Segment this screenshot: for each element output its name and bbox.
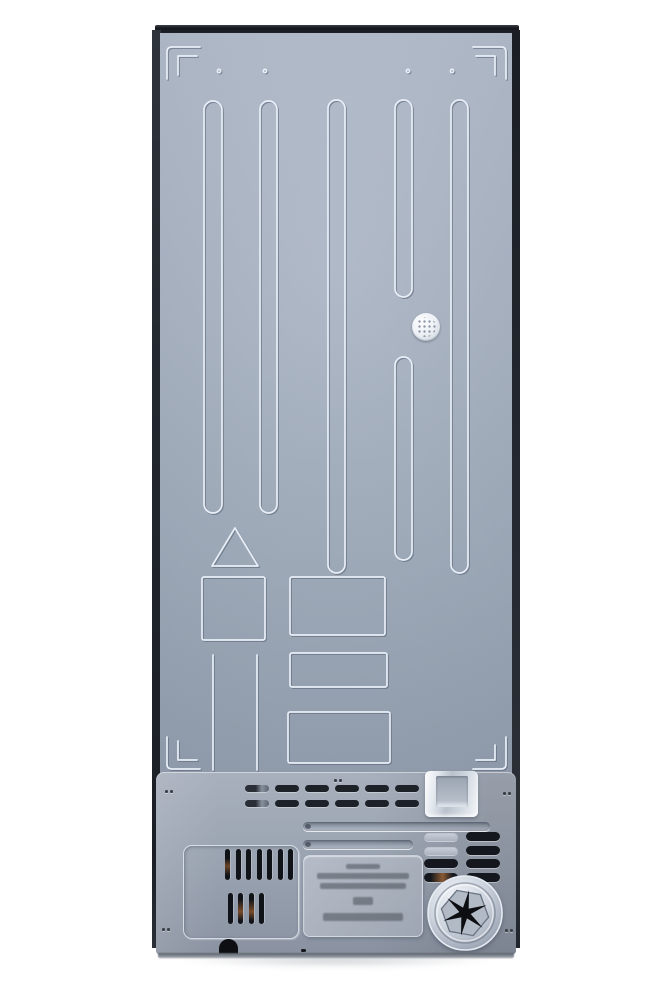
vent-slot [395, 800, 419, 807]
grille-slot-row [225, 849, 293, 880]
mounting-bracket [425, 771, 478, 817]
left-vent-grille [183, 845, 299, 939]
vent-slot [245, 785, 269, 792]
plate-text-line [323, 913, 403, 921]
grille-slot [238, 893, 243, 924]
soft-drop-shadow [168, 958, 504, 970]
compressor-cover [156, 772, 516, 954]
screw-mark [503, 792, 512, 796]
screw-mark [334, 779, 343, 783]
plate-text-line [317, 873, 409, 879]
grille-slot [259, 893, 264, 924]
vent-slot-group [365, 785, 389, 807]
grille-slot [246, 849, 251, 880]
grille-slot [225, 849, 230, 880]
cover-groove [303, 822, 490, 831]
vent-cell [466, 832, 500, 841]
vent-cell [424, 859, 458, 868]
screw-mark [165, 790, 174, 794]
vent-slot-group [395, 785, 419, 807]
rating-label-plate [303, 855, 423, 937]
vent-slot [305, 785, 329, 792]
vent-slot [245, 800, 269, 807]
grille-slot [249, 893, 254, 924]
vent-slot [365, 785, 389, 792]
grille-slot [288, 849, 293, 880]
vent-cell [424, 832, 458, 841]
vent-slot [275, 785, 299, 792]
vent-slot-group [305, 785, 329, 807]
vent-slot [275, 800, 299, 807]
drain-hole [219, 939, 238, 954]
vent-slot-group [275, 785, 299, 807]
vent-cell [466, 859, 500, 868]
plate-text-line [346, 864, 380, 869]
panel-vent-plug [412, 313, 440, 341]
fridge-back-panel [160, 33, 512, 774]
plate-text-line [353, 897, 373, 905]
cover-groove [303, 840, 413, 849]
grille-slot [257, 849, 262, 880]
vent-cell [466, 846, 500, 855]
drain-cap-star [426, 874, 504, 952]
grille-slot [236, 849, 241, 880]
grille-slot [228, 893, 233, 924]
vent-slot [335, 800, 359, 807]
grille-slot [267, 849, 272, 880]
vent-slot [395, 785, 419, 792]
screw-mark [162, 928, 171, 932]
vent-slot [335, 785, 359, 792]
grille-slot-row [228, 893, 264, 924]
vent-slot [305, 800, 329, 807]
vent-cell [424, 846, 458, 855]
plate-text-line [320, 883, 406, 889]
product-photo-refrigerator-back [0, 0, 667, 1000]
screw-mark [505, 929, 514, 933]
small-vent-notch [301, 949, 306, 952]
vent-slot-group [335, 785, 359, 807]
cover-top-vent-row [245, 785, 419, 807]
vent-slot-group [245, 785, 269, 807]
vent-slot [365, 800, 389, 807]
grille-slot [278, 849, 283, 880]
